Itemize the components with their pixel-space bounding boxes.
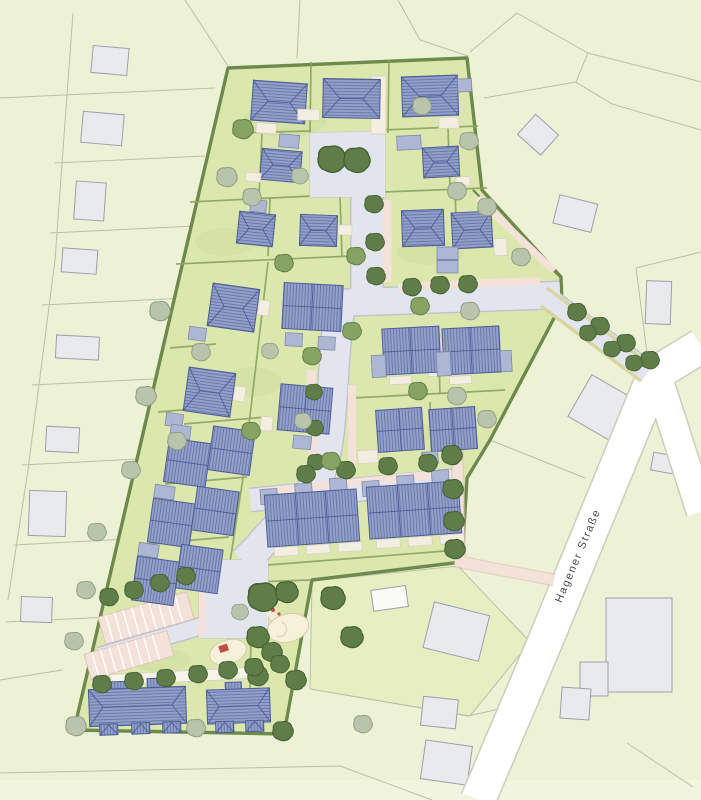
tree [442, 445, 463, 464]
terrace [245, 172, 261, 182]
detached-house [401, 209, 444, 246]
garage [371, 355, 386, 378]
tree [347, 247, 366, 265]
tree [192, 343, 211, 361]
existing-building [421, 696, 459, 728]
garden-shed [371, 586, 409, 612]
tree [125, 581, 144, 599]
tree [460, 132, 479, 150]
tree [77, 581, 96, 599]
tree [413, 97, 432, 115]
terrace [389, 376, 411, 385]
tree [286, 670, 307, 689]
terrace [408, 536, 433, 547]
terrace [439, 117, 459, 129]
existing-building [91, 45, 129, 75]
existing-building [560, 687, 591, 720]
terrace [338, 542, 363, 553]
existing-building [55, 335, 99, 360]
tree [444, 511, 465, 530]
tree [443, 479, 464, 498]
tree [409, 382, 428, 400]
garage [154, 484, 176, 500]
tree [297, 465, 316, 483]
tree [318, 146, 346, 172]
garage [397, 135, 422, 150]
tree [568, 303, 587, 321]
row-house [259, 477, 362, 558]
tree [341, 627, 363, 648]
tree [262, 343, 279, 359]
existing-building [61, 248, 98, 274]
tree [459, 275, 478, 293]
tree [100, 588, 119, 606]
terrace [376, 538, 401, 549]
tree [292, 168, 309, 184]
tree [448, 182, 467, 200]
tree [322, 452, 341, 470]
tree [461, 302, 480, 320]
tree [478, 198, 497, 216]
tree [354, 715, 373, 733]
terrace [274, 546, 299, 557]
garage [279, 134, 300, 149]
tree [276, 582, 298, 603]
tree [478, 410, 497, 428]
tree [187, 719, 206, 737]
tree [157, 669, 176, 687]
garage [318, 336, 336, 350]
tree [189, 665, 208, 683]
tree [303, 347, 322, 365]
tree [411, 297, 430, 315]
terrace [256, 122, 277, 133]
tree [275, 254, 294, 272]
garage [436, 352, 451, 377]
tree [626, 355, 643, 371]
tree [177, 567, 196, 585]
garage [138, 542, 160, 558]
tree [445, 539, 466, 558]
existing-building [420, 740, 472, 785]
tree [88, 523, 107, 541]
garage [500, 350, 512, 372]
terrace [233, 386, 246, 402]
existing-building [28, 490, 67, 536]
tree [431, 276, 450, 294]
tree [248, 583, 278, 611]
tree [233, 119, 254, 138]
tree [271, 655, 290, 673]
existing-building [645, 281, 671, 325]
garage [188, 326, 207, 341]
tree [379, 457, 398, 475]
tree [580, 325, 597, 341]
tree [66, 716, 87, 735]
tree [93, 675, 112, 693]
bottom-field [0, 780, 701, 800]
tree [65, 632, 84, 650]
garage [285, 333, 303, 347]
tree [219, 661, 238, 679]
tree [403, 278, 422, 296]
garage [457, 79, 471, 92]
terrace [357, 449, 378, 463]
tree [448, 387, 467, 405]
terrace [260, 416, 273, 431]
tree [125, 672, 144, 690]
existing-building [74, 181, 107, 221]
existing-building [81, 111, 125, 145]
tree [243, 188, 262, 206]
tree [245, 658, 264, 676]
tree [343, 322, 362, 340]
tree [306, 384, 323, 400]
tree [217, 167, 238, 186]
tree [122, 461, 141, 479]
tree [512, 248, 531, 266]
terrace [449, 375, 471, 384]
site-plan-svg: Hagener Straße [0, 0, 701, 800]
tree [366, 233, 385, 251]
driveway-pad [338, 225, 352, 235]
tree [295, 413, 312, 429]
tree [367, 267, 386, 285]
tree [365, 195, 384, 213]
garage [293, 435, 312, 450]
terrace [257, 300, 270, 316]
tree [604, 341, 621, 357]
tree [150, 301, 171, 320]
existing-building [45, 426, 79, 453]
tree [242, 422, 261, 440]
terrace [306, 544, 331, 555]
tree [321, 587, 345, 610]
tree [136, 386, 157, 405]
existing-building [606, 598, 672, 692]
terrace [493, 238, 507, 256]
tree [232, 604, 249, 620]
tree [419, 454, 438, 472]
tree [344, 148, 370, 173]
existing-building [21, 596, 53, 622]
tree [151, 574, 170, 592]
tree [273, 721, 294, 740]
tree [168, 432, 187, 450]
terrace [298, 109, 320, 120]
play-equipment [277, 612, 280, 615]
site-plan: Hagener Straße [0, 0, 701, 800]
tree [641, 351, 660, 369]
